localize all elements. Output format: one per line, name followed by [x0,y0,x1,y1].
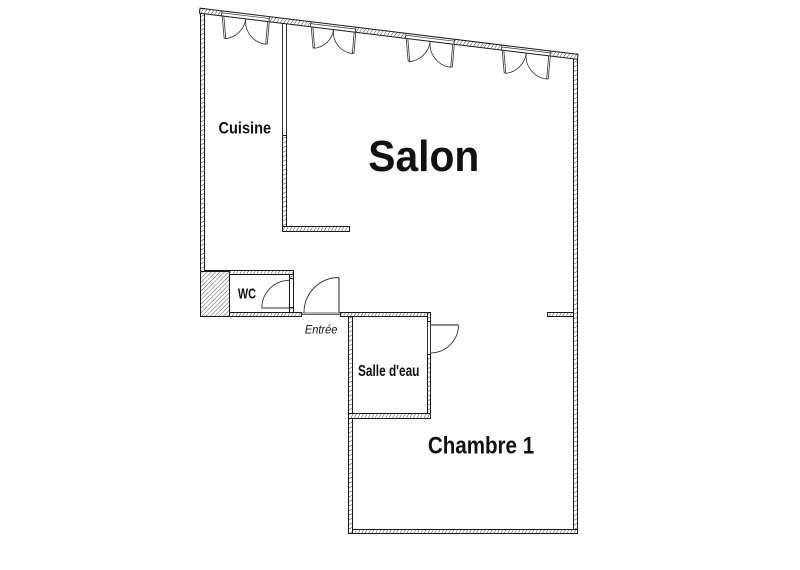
svg-text:Entrée: Entrée [305,323,338,337]
svg-text:Salon: Salon [368,132,479,181]
svg-text:Cuisine: Cuisine [219,120,272,138]
svg-text:Salle d'eau: Salle d'eau [358,363,419,380]
svg-text:Chambre 1: Chambre 1 [428,432,534,459]
svg-text:WC: WC [238,287,256,303]
